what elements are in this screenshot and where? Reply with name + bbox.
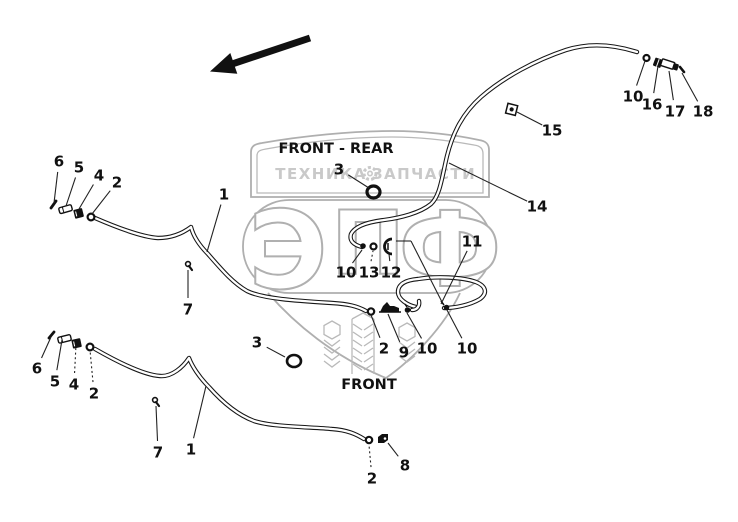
fitting-ring-2-lower (87, 344, 94, 351)
watermark-word-left: ТЕХНИКА (275, 165, 367, 183)
fitting-nut-4-upper (73, 208, 84, 219)
fitting-pin-6-lower (49, 332, 54, 338)
callout-number-6: 6 (54, 153, 64, 171)
callout-number-1: 1 (186, 441, 196, 459)
leader-line-17 (669, 71, 673, 100)
leader-line-6 (54, 172, 58, 203)
callout-layer: 6542173101312111415101617182910103654271… (32, 61, 714, 488)
callout-number-2: 2 (379, 340, 389, 358)
callout-number-3: 3 (252, 334, 262, 352)
callout-number-7: 7 (153, 444, 163, 462)
callout-number-5: 5 (50, 373, 60, 391)
leader-line-5 (66, 177, 76, 206)
callout-number-10: 10 (457, 340, 478, 358)
clip-7-upper (186, 262, 192, 270)
callout-number-10: 10 (417, 340, 438, 358)
leader-line-9 (388, 314, 400, 342)
leader-line-15 (517, 112, 542, 125)
parts-diagram-canvas: ТЕХНИКА ЗАПЧАСТИ Э П Ф (0, 0, 738, 522)
fitting-pin-18 (680, 67, 684, 72)
callout-number-12: 12 (381, 264, 402, 282)
callout-number-10: 10 (336, 264, 357, 282)
callout-number-1: 1 (219, 186, 229, 204)
leader-line-4 (79, 184, 93, 209)
leader-line-2 (369, 445, 371, 467)
fitting-13-center (371, 244, 377, 250)
fitting-elbow-8 (378, 434, 388, 443)
leader-line-18 (682, 73, 698, 101)
callout-number-2: 2 (367, 470, 377, 488)
fitting-10-center (360, 243, 366, 249)
fitting-sleeve-5-upper (58, 204, 72, 213)
leader-line-1 (194, 386, 206, 438)
callout-number-9: 9 (399, 344, 409, 362)
leader-line-7 (156, 406, 158, 441)
callout-number-7: 7 (183, 301, 193, 319)
callout-number-17: 17 (665, 103, 686, 121)
fitting-ring-10-topright (644, 55, 650, 61)
callout-number-6: 6 (32, 360, 42, 378)
direction-arrow-icon (210, 35, 311, 74)
clip-7-lower (153, 398, 159, 406)
callout-number-10: 10 (623, 88, 644, 106)
grommet-3-left (287, 355, 301, 367)
leader-line-1 (207, 205, 221, 252)
leader-line-16 (654, 66, 658, 93)
fitting-ring-2-bottom (366, 437, 372, 443)
leader-line-6 (42, 337, 51, 358)
fitting-ring-2-mid (368, 308, 374, 314)
parts-diagram-page: ТЕХНИКА ЗАПЧАСТИ Э П Ф (0, 0, 738, 522)
leader-line-2 (371, 315, 380, 338)
fitting-ring-2-upper (88, 214, 95, 221)
callout-number-2: 2 (112, 174, 122, 192)
callout-number-4: 4 (94, 167, 104, 185)
leader-line-4 (75, 345, 76, 373)
fitting-sleeve-5-lower (57, 334, 71, 343)
callout-number-13: 13 (359, 264, 380, 282)
hose-tube-1-lower (95, 349, 364, 439)
front-rear-label: FRONT - REAR (279, 141, 394, 157)
clip-15 (506, 103, 518, 115)
fitting-pin-6-upper (51, 201, 56, 208)
callout-number-5: 5 (74, 159, 84, 177)
callout-number-3: 3 (334, 161, 344, 179)
callout-number-11: 11 (462, 233, 483, 251)
leader-line-3 (267, 347, 285, 357)
callout-number-16: 16 (642, 96, 663, 114)
leader-line-8 (388, 443, 398, 456)
leader-line-2 (92, 191, 110, 214)
callout-number-2: 2 (89, 385, 99, 403)
fitting-nut-4-lower (71, 338, 82, 349)
callout-number-4: 4 (69, 376, 79, 394)
callout-number-15: 15 (542, 122, 563, 140)
callout-number-14: 14 (527, 198, 548, 216)
fitting-cylinder-17 (660, 59, 679, 71)
callout-number-18: 18 (693, 103, 714, 121)
watermark-word-right: ЗАПЧАСТИ (372, 165, 476, 183)
leader-line-10 (447, 310, 462, 338)
leader-line-5 (57, 340, 62, 370)
leader-line-10 (637, 61, 645, 86)
front-label: FRONT (341, 377, 397, 393)
leader-line-2 (90, 350, 93, 382)
leader-line-12 (389, 254, 390, 261)
callout-number-8: 8 (400, 457, 410, 475)
